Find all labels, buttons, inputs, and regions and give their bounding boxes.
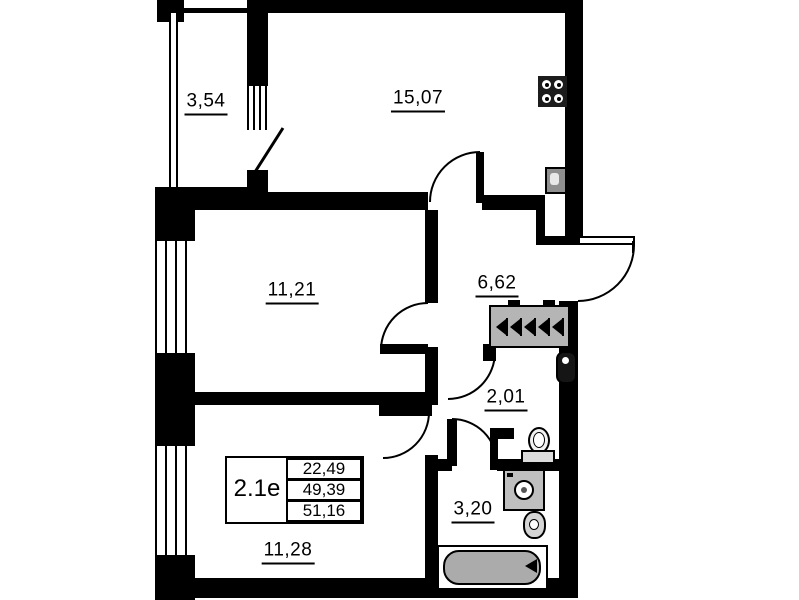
room-label-bedroom: 11,28 — [262, 540, 315, 565]
washing-machine-icon — [503, 469, 545, 511]
window-living-room — [155, 240, 195, 355]
balcony-glazing — [169, 13, 178, 187]
bedroom-door-arc — [383, 412, 429, 458]
unit-main-area-value: 49,39 — [302, 480, 347, 501]
hanger-icon — [496, 318, 508, 336]
toilet-tank-icon — [521, 450, 555, 464]
wall-segment-top — [247, 0, 583, 13]
wall-segment-left-mid — [155, 353, 195, 445]
wardrobe-hangers-icon — [489, 305, 570, 348]
wall-segment-duct-bottom — [536, 236, 583, 245]
balcony-door-leaf-line — [255, 128, 283, 172]
bedroom-door-leaf — [379, 405, 432, 416]
stove-burner-icon — [542, 80, 551, 89]
wall-segment-livingroom-right — [425, 210, 438, 303]
hanger-icon — [552, 318, 564, 336]
livingroom-door-leaf — [380, 344, 428, 354]
wall-segment-kitchen-bottom-right — [482, 195, 537, 210]
unit-total-area-value: 51,16 — [303, 501, 346, 520]
window-bedroom — [155, 445, 195, 557]
wall-segment-left-top — [155, 195, 195, 240]
bathroom-door-leaf — [447, 419, 457, 466]
wall-segment-mid-horizontal — [190, 392, 438, 405]
bathtub-drain-arrow-icon — [525, 559, 537, 573]
washing-machine-panel-icon — [507, 473, 513, 477]
unit-living-area-value: 22,49 — [303, 459, 346, 478]
balcony-window — [247, 86, 268, 130]
floor-plan: 3,54 15,07 11,21 6,62 2,01 3,20 11,28 2.… — [0, 0, 799, 600]
hanger-icon — [524, 318, 536, 336]
room-label-kitchen: 15,07 — [391, 88, 445, 113]
wall-segment-right-upper — [565, 0, 583, 236]
wall-segment-mid-band — [192, 192, 428, 210]
water-heater-icon — [556, 351, 577, 384]
unit-total-area: 51,16 — [286, 500, 362, 522]
hanger-icon — [538, 318, 550, 336]
unit-living-area: 22,49 — [286, 458, 362, 480]
unit-main-area: 49,39 — [286, 479, 362, 501]
unit-type-label: 2.1е — [228, 472, 286, 506]
bath-sink-icon — [523, 511, 546, 539]
bathtub-icon — [437, 545, 548, 590]
kitchen-sink-icon — [545, 167, 567, 194]
room-label-wc: 2,01 — [485, 387, 528, 412]
hanger-icon — [510, 318, 522, 336]
wall-segment-balcony-topline — [177, 8, 250, 13]
kitchen-door-leaf — [476, 152, 484, 203]
stove-burner-icon — [542, 94, 551, 103]
room-label-hallway: 6,62 — [476, 273, 519, 298]
room-label-bathroom: 3,20 — [452, 499, 495, 524]
entrance-door-leaf — [578, 236, 635, 245]
room-label-balcony: 3,54 — [185, 91, 228, 116]
entrance-door-arc — [578, 245, 634, 301]
room-label-living-room: 11,21 — [266, 280, 319, 305]
stove-icon — [538, 76, 567, 107]
washing-machine-door-icon — [514, 480, 534, 500]
livingroom-door-arc — [381, 303, 428, 350]
wall-segment-left-bottom — [155, 555, 195, 600]
stove-burner-icon — [554, 94, 563, 103]
stove-burner-icon — [554, 80, 563, 89]
kitchen-door-arc — [430, 152, 480, 202]
wall-segment-partition-upper — [247, 13, 268, 86]
